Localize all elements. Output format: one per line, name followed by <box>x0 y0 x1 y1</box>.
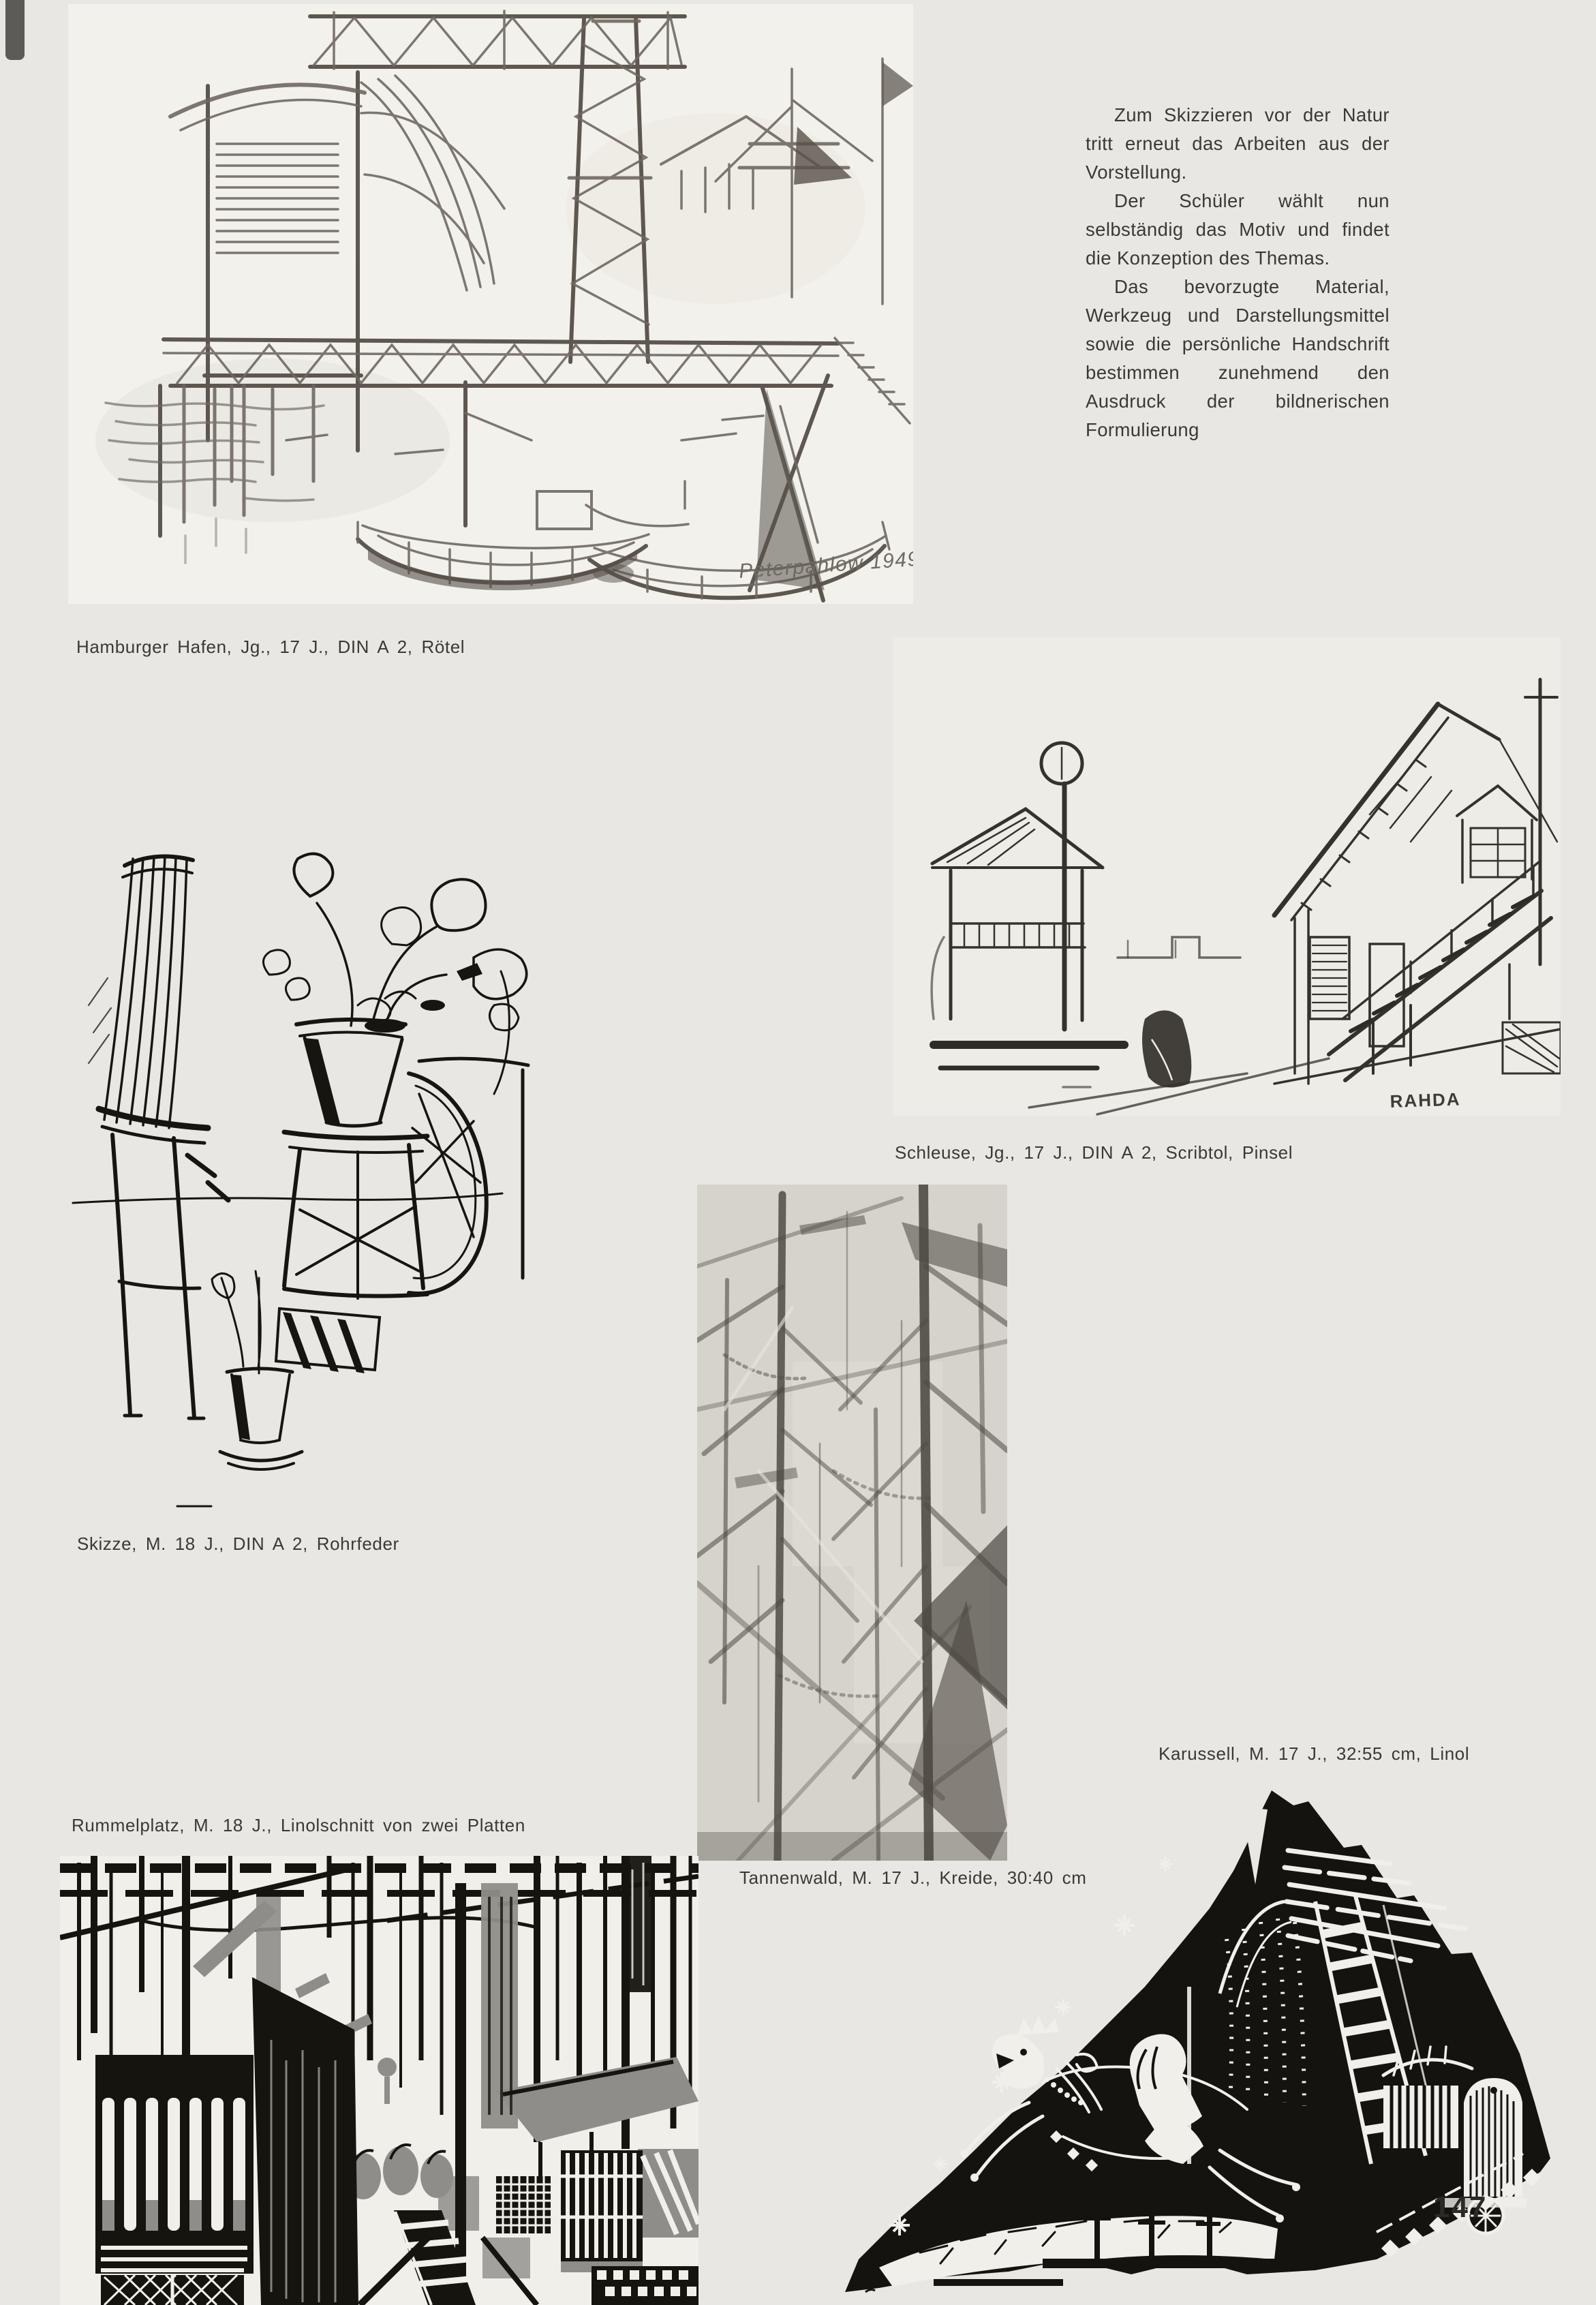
tannenwald-image <box>697 1185 1007 1861</box>
hamburger-hafen-image: Peterpahlow 1949 <box>68 4 913 604</box>
artwork-schleuse: RAHDA <box>893 637 1561 1116</box>
intro-paragraph: Der Schüler wählt nun selbständig das Mo… <box>1086 187 1390 273</box>
intro-text: Zum Skizzieren vor der Natur tritt erneu… <box>1086 101 1390 444</box>
artwork-hamburger-hafen: Peterpahlow 1949 <box>68 4 913 604</box>
caption-hamburger-hafen: Hamburger Hafen, Jg., 17 J., DIN A 2, Rö… <box>76 637 465 658</box>
rummelplatz-image <box>60 1856 699 2305</box>
scan-artifact <box>5 0 25 60</box>
caption-rummelplatz: Rummelplatz, M. 18 J., Linolschnitt von … <box>72 1815 525 1836</box>
caption-skizze: Skizze, M. 18 J., DIN A 2, Rohrfeder <box>77 1533 399 1555</box>
page-number: 147 <box>1433 2190 1487 2225</box>
artist-signature: RAHDA <box>1390 1088 1461 1112</box>
artwork-skizze <box>65 801 545 1523</box>
intro-paragraph: Das bevorzugte Material, Werkzeug und Da… <box>1086 273 1390 444</box>
intro-paragraph: Zum Skizzieren vor der Natur tritt erneu… <box>1086 101 1390 187</box>
caption-schleuse: Schleuse, Jg., 17 J., DIN A 2, Scribtol,… <box>895 1142 1293 1163</box>
book-page: Peterpahlow 1949 Zum Skizzieren vor der … <box>0 0 1596 2305</box>
caption-karussell: Karussell, M. 17 J., 32:55 cm, Linol <box>1158 1743 1469 1765</box>
artwork-rummelplatz <box>60 1856 699 2305</box>
artwork-tannenwald <box>697 1185 1007 1861</box>
skizze-image <box>65 801 545 1523</box>
schleuse-image: RAHDA <box>893 637 1561 1116</box>
